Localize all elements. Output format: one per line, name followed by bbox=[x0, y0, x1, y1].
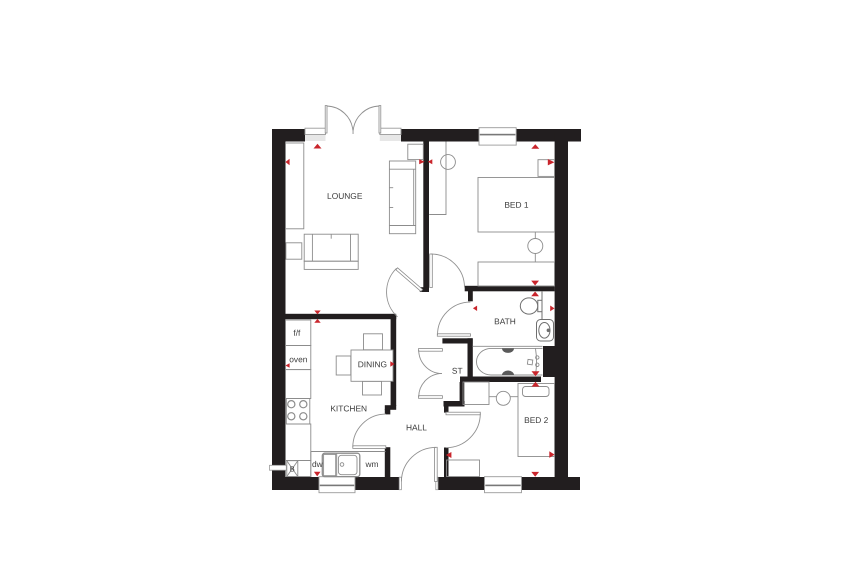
svg-text:KITCHEN: KITCHEN bbox=[330, 403, 367, 413]
svg-text:HALL: HALL bbox=[406, 422, 427, 432]
svg-text:oven: oven bbox=[289, 354, 308, 364]
svg-text:BED 1: BED 1 bbox=[504, 200, 529, 210]
svg-text:f/f: f/f bbox=[293, 328, 301, 338]
svg-text:B: B bbox=[290, 464, 295, 473]
svg-text:BED 2: BED 2 bbox=[524, 415, 549, 425]
svg-text:ST: ST bbox=[452, 366, 463, 376]
svg-text:wm: wm bbox=[365, 459, 379, 469]
svg-text:dw: dw bbox=[312, 459, 324, 469]
svg-text:BATH: BATH bbox=[494, 316, 516, 326]
svg-text:LOUNGE: LOUNGE bbox=[327, 191, 363, 201]
svg-text:DINING: DINING bbox=[358, 359, 387, 369]
